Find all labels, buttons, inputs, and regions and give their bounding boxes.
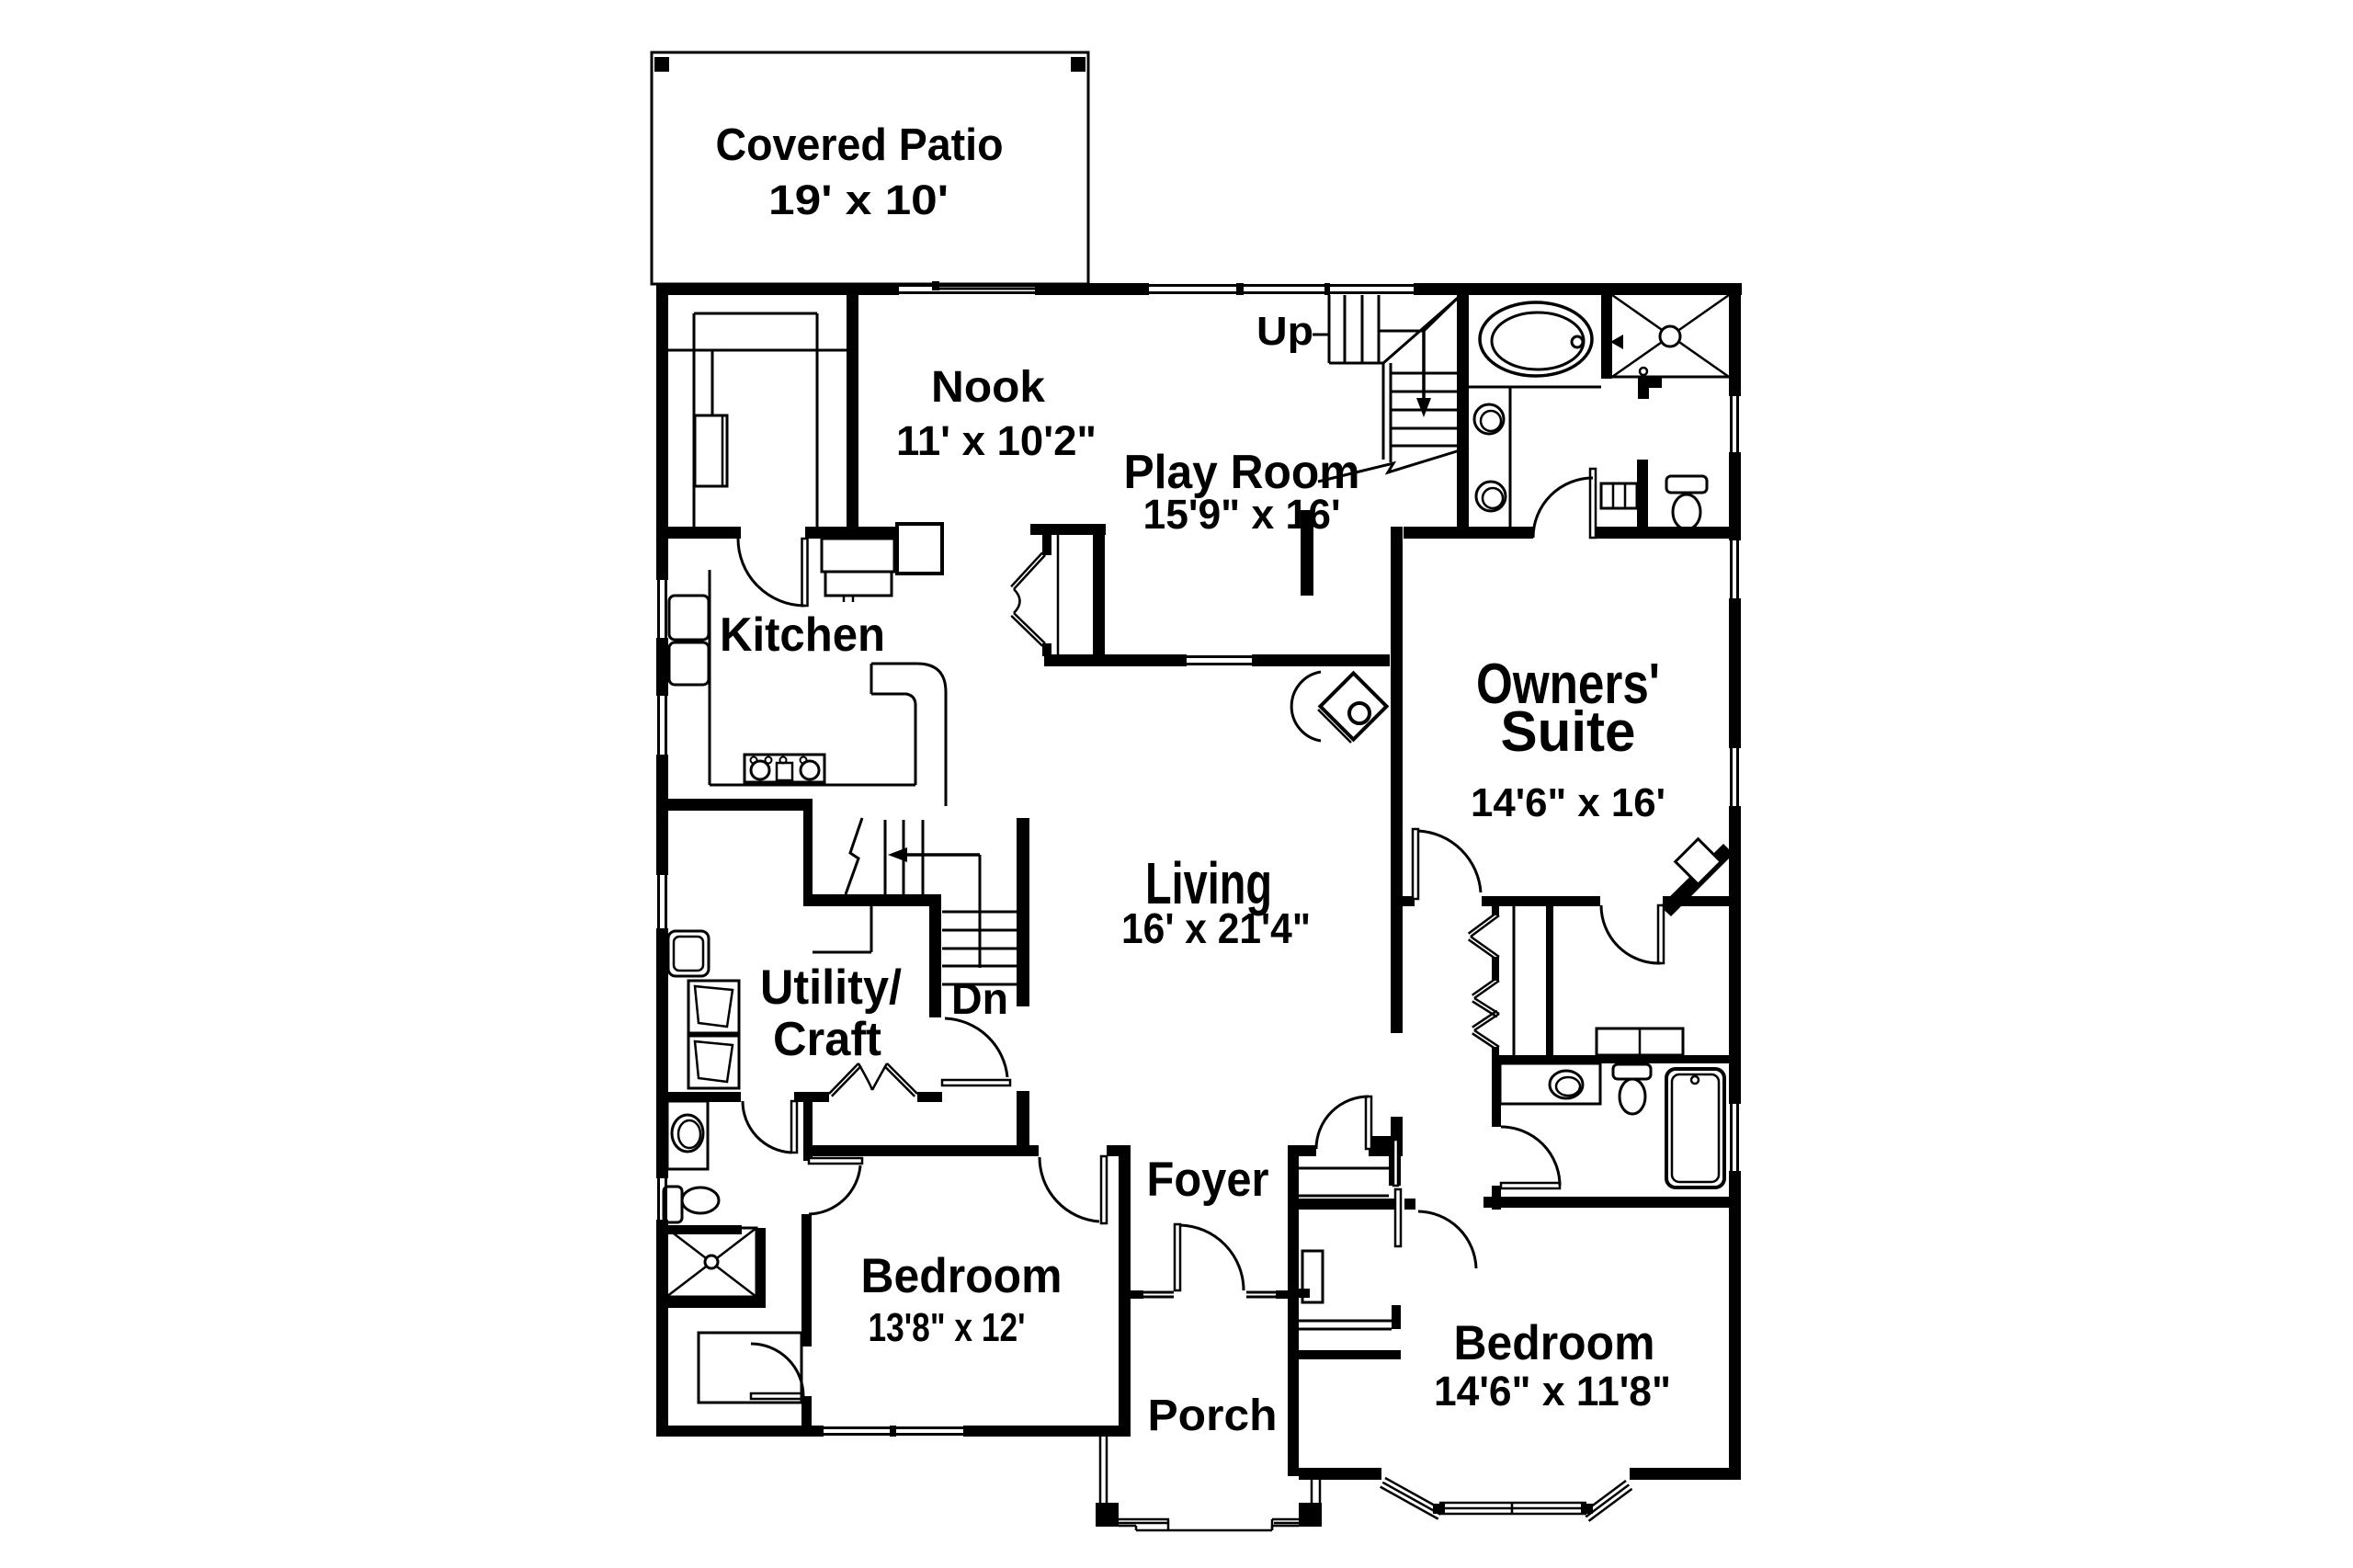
svg-text:Kitchen: Kitchen xyxy=(720,608,885,662)
svg-text:Bedroom: Bedroom xyxy=(1454,1316,1655,1370)
svg-text:Craft: Craft xyxy=(773,1013,881,1066)
svg-text:Porch: Porch xyxy=(1148,1392,1278,1440)
svg-text:Nook: Nook xyxy=(931,363,1045,412)
svg-text:Bedroom: Bedroom xyxy=(861,1249,1063,1303)
svg-text:16' x 21'4": 16' x 21'4" xyxy=(1121,904,1311,952)
svg-text:Suite: Suite xyxy=(1501,700,1636,764)
svg-text:19' x 10': 19' x 10' xyxy=(768,176,949,223)
svg-text:Covered Patio: Covered Patio xyxy=(716,120,1004,170)
svg-text:Up: Up xyxy=(1256,309,1313,354)
svg-text:Foyer: Foyer xyxy=(1147,1153,1269,1207)
svg-text:14'6" x 16': 14'6" x 16' xyxy=(1471,780,1665,825)
svg-text:15'9" x 16': 15'9" x 16' xyxy=(1143,491,1341,538)
svg-text:11' x 10'2": 11' x 10'2" xyxy=(896,417,1097,464)
svg-text:13'8" x 12': 13'8" x 12' xyxy=(869,1305,1026,1350)
svg-text:Utility/: Utility/ xyxy=(760,960,902,1015)
svg-text:14'6" x 11'8": 14'6" x 11'8" xyxy=(1434,1368,1671,1415)
svg-text:Dn: Dn xyxy=(951,975,1008,1024)
